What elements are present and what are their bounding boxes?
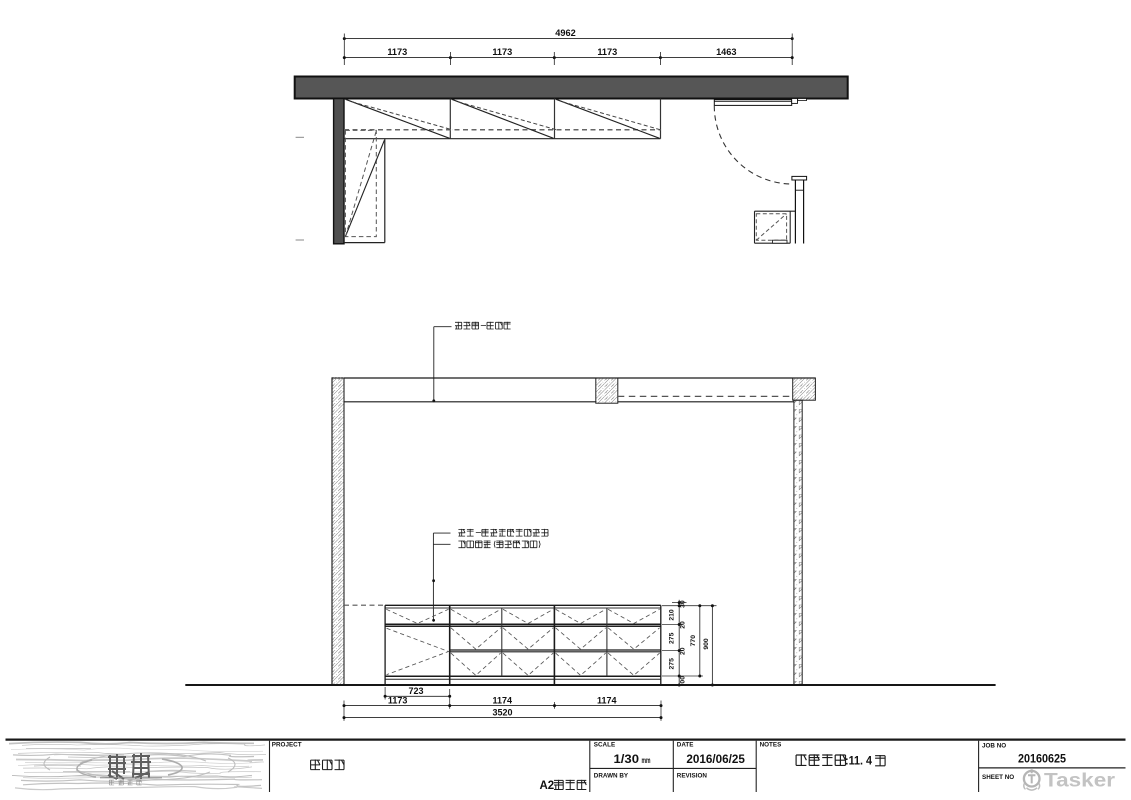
svg-text:900: 900 — [703, 638, 710, 650]
svg-text::11. 4: :11. 4 — [845, 756, 873, 768]
svg-text:1174: 1174 — [597, 695, 617, 705]
svg-text:275: 275 — [668, 658, 675, 670]
svg-text:723: 723 — [408, 686, 423, 696]
svg-text:1173: 1173 — [597, 47, 617, 57]
svg-text:Tasker: Tasker — [1044, 770, 1116, 791]
svg-text:1/30: 1/30 — [614, 752, 640, 766]
svg-text:mm: mm — [642, 756, 651, 765]
svg-text:3520: 3520 — [492, 707, 512, 717]
svg-text:210: 210 — [668, 609, 675, 621]
svg-text:SCALE: SCALE — [594, 742, 615, 749]
svg-text:1173: 1173 — [388, 695, 408, 705]
svg-text:20160625: 20160625 — [1018, 752, 1066, 766]
svg-text:DRAWN BY: DRAWN BY — [594, 773, 629, 780]
svg-text:PROJECT: PROJECT — [272, 742, 302, 749]
svg-text:2016/06/25: 2016/06/25 — [686, 752, 745, 766]
svg-text:1173: 1173 — [492, 47, 512, 57]
svg-text:20: 20 — [680, 647, 687, 655]
svg-text:NOTES: NOTES — [760, 742, 782, 749]
svg-text:20: 20 — [680, 621, 687, 629]
svg-text:A2: A2 — [540, 780, 555, 792]
svg-text:SHEET NO: SHEET NO — [982, 774, 1014, 781]
svg-text:JOB NO: JOB NO — [982, 743, 1006, 750]
svg-text:770: 770 — [690, 635, 697, 647]
svg-text:DATE: DATE — [677, 742, 694, 749]
svg-text:1174: 1174 — [493, 695, 513, 705]
svg-text:4962: 4962 — [555, 28, 575, 38]
svg-text:REVISION: REVISION — [677, 773, 708, 780]
svg-text:1173: 1173 — [387, 47, 407, 57]
svg-text:30: 30 — [680, 600, 687, 608]
svg-text:1463: 1463 — [716, 47, 736, 57]
svg-text:00: 00 — [680, 676, 687, 684]
svg-text:275: 275 — [668, 632, 675, 644]
